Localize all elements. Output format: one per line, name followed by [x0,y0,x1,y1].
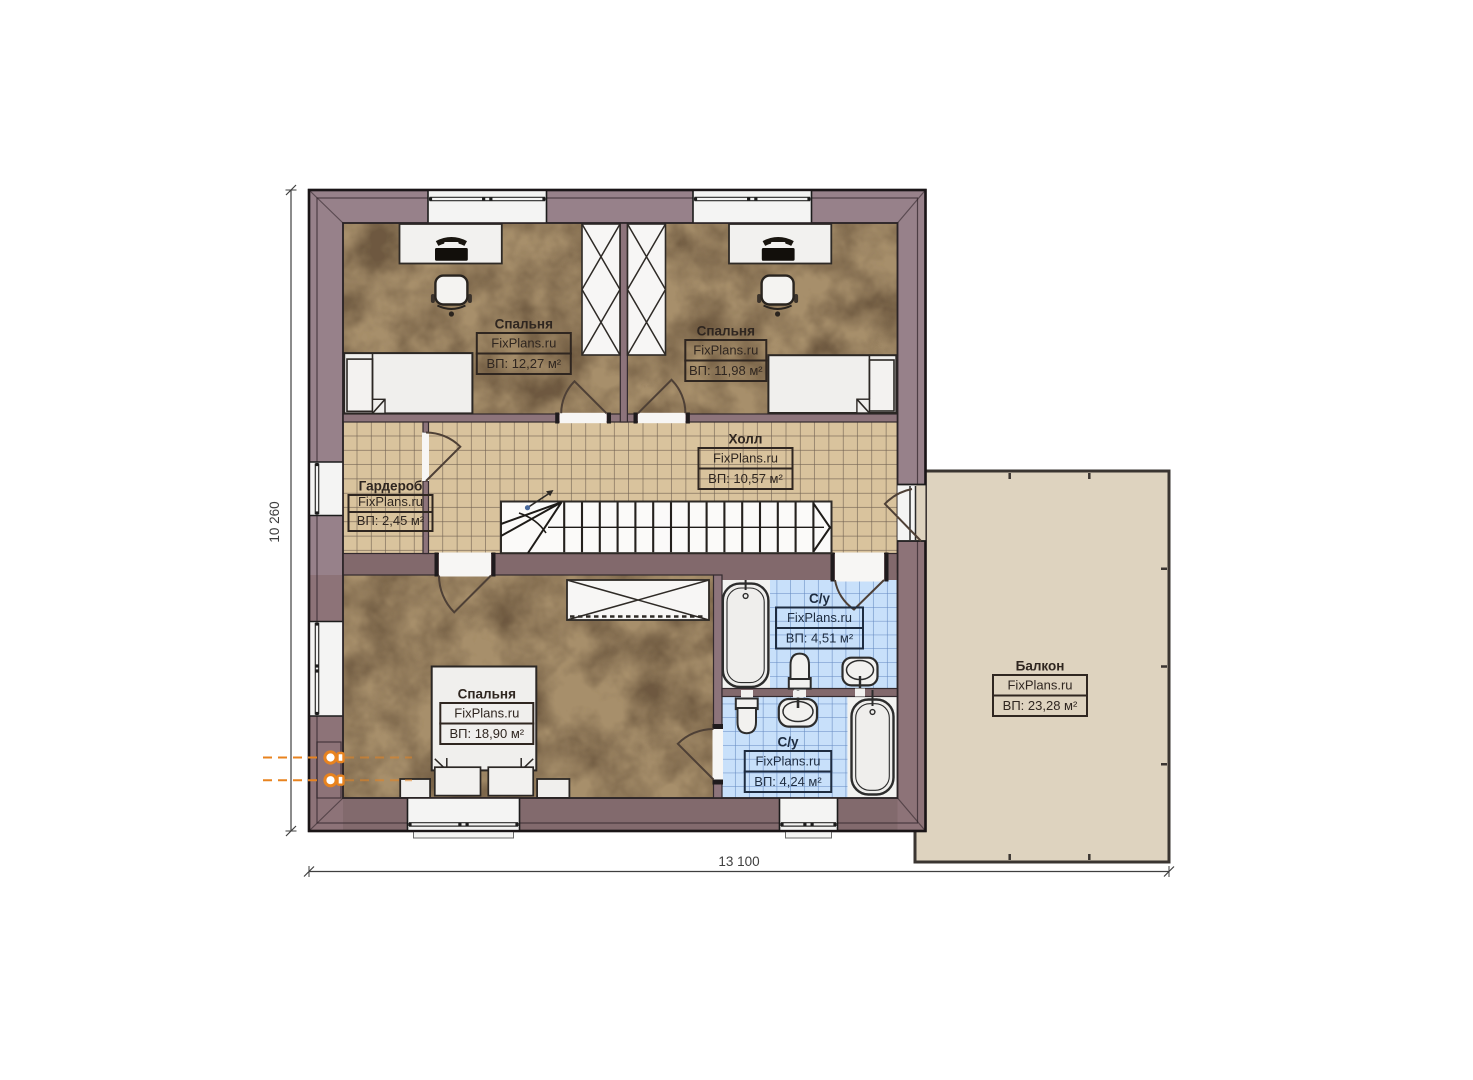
svg-text:FixPlans.ru: FixPlans.ru [1007,678,1072,693]
svg-text:Гардероб: Гардероб [359,479,423,494]
svg-text:С/у: С/у [809,591,831,606]
svg-text:FixPlans.ru: FixPlans.ru [787,610,852,625]
svg-text:ВП: 23,28 м²: ВП: 23,28 м² [1003,698,1078,713]
svg-text:ВП: 4,51 м²: ВП: 4,51 м² [786,631,854,646]
svg-text:Спальня: Спальня [697,324,755,339]
svg-text:Спальня: Спальня [458,687,516,702]
svg-text:FixPlans.ru: FixPlans.ru [693,343,758,358]
svg-text:FixPlans.ru: FixPlans.ru [755,754,820,769]
svg-text:ВП: 2,45 м²: ВП: 2,45 м² [357,513,425,528]
svg-text:FixPlans.ru: FixPlans.ru [713,451,778,466]
svg-text:ВП: 10,57 м²: ВП: 10,57 м² [708,471,783,486]
svg-text:ВП: 11,98 м²: ВП: 11,98 м² [689,363,763,378]
svg-text:ВП: 12,27 м²: ВП: 12,27 м² [486,356,561,371]
svg-text:Холл: Холл [729,432,763,447]
svg-text:ВП: 18,90 м²: ВП: 18,90 м² [449,726,524,741]
svg-text:ВП: 4,24 м²: ВП: 4,24 м² [754,774,822,789]
svg-text:FixPlans.ru: FixPlans.ru [358,494,423,509]
svg-text:10 260: 10 260 [267,501,282,542]
svg-text:FixPlans.ru: FixPlans.ru [491,336,556,351]
svg-text:Балкон: Балкон [1016,659,1065,674]
svg-text:Спальня: Спальня [495,317,553,332]
svg-text:С/у: С/у [777,735,799,750]
svg-text:FixPlans.ru: FixPlans.ru [454,706,519,721]
svg-text:13 100: 13 100 [718,854,759,869]
